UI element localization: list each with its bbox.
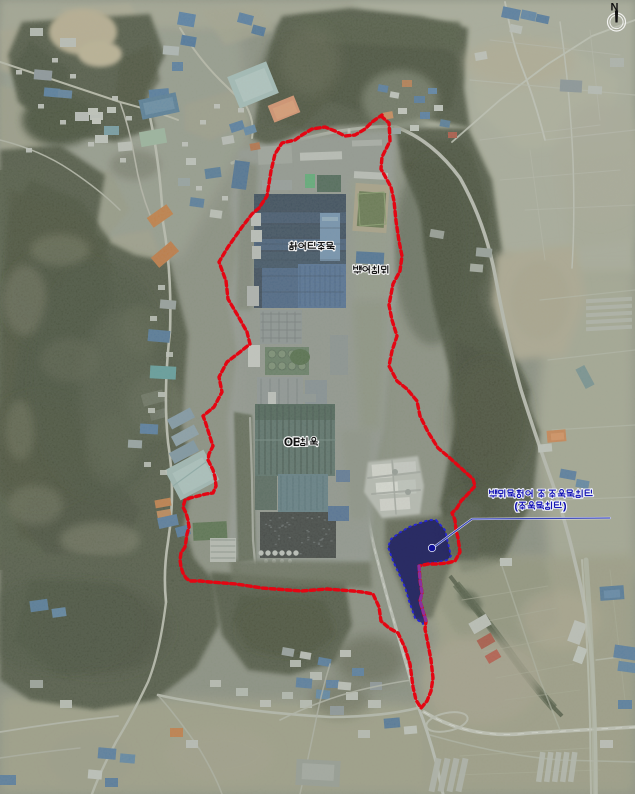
svg-text:OB: OB [284, 437, 301, 449]
svg-text:N: N [611, 2, 619, 14]
svg-text:): ) [563, 501, 567, 513]
